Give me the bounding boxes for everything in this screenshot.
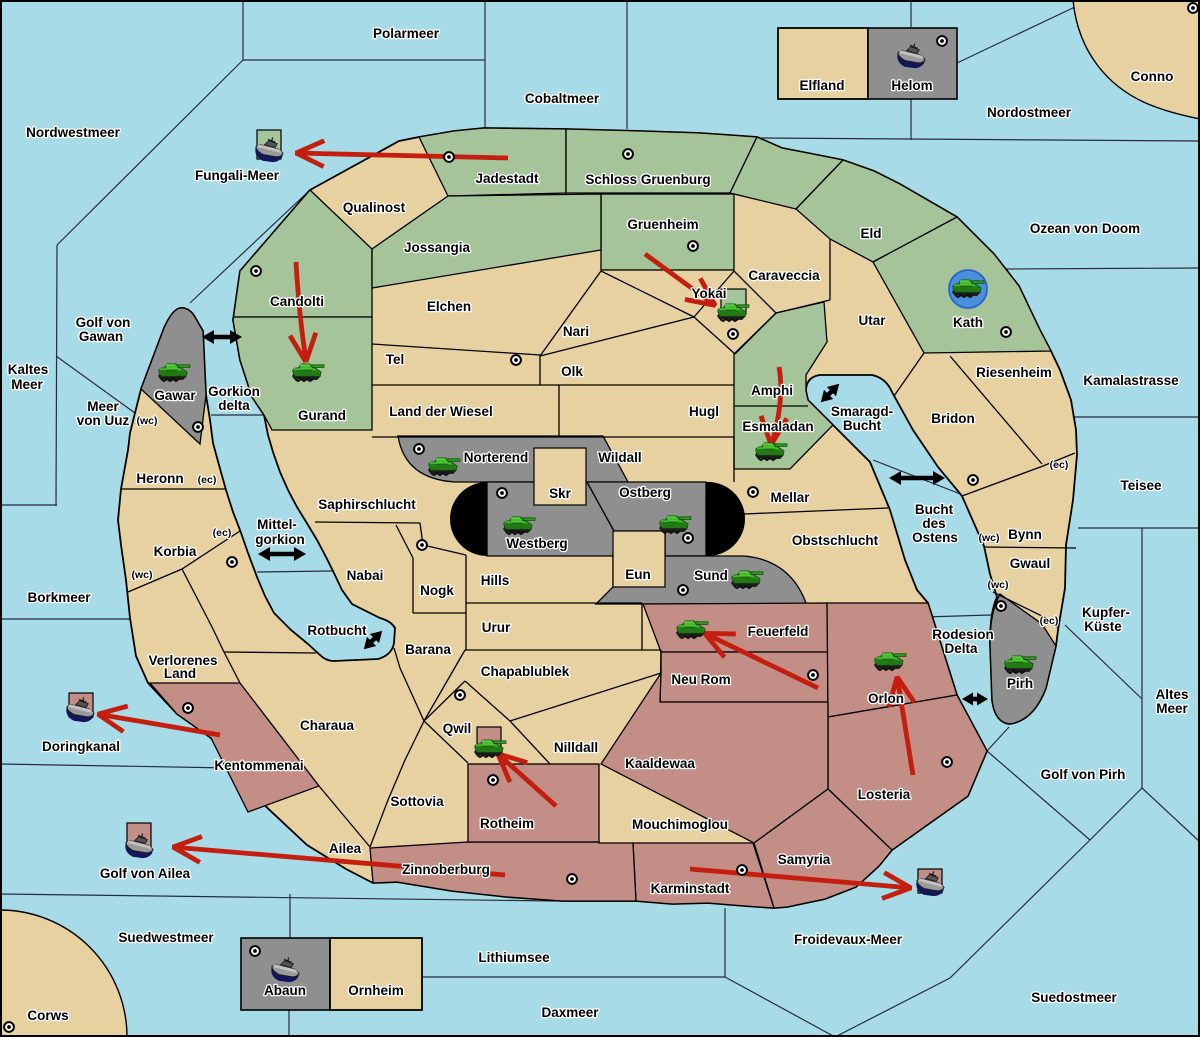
svg-text:Meer: Meer [11, 377, 43, 392]
svg-text:Ostberg: Ostberg [619, 485, 671, 500]
svg-text:Nordwestmeer: Nordwestmeer [26, 125, 121, 140]
svg-text:Korbia: Korbia [154, 544, 197, 559]
svg-text:Hugl: Hugl [689, 404, 719, 419]
svg-text:Golf von Ailea: Golf von Ailea [100, 866, 191, 881]
svg-text:Kamalastrasse: Kamalastrasse [1083, 373, 1179, 388]
svg-text:Land: Land [164, 666, 196, 681]
svg-text:Eun: Eun [625, 567, 651, 582]
svg-text:Kupfer-: Kupfer- [1082, 605, 1130, 620]
svg-text:Elchen: Elchen [427, 299, 471, 314]
svg-text:Westberg: Westberg [506, 536, 567, 551]
svg-text:Jossangia: Jossangia [404, 240, 471, 255]
svg-text:(wc): (wc) [979, 532, 1000, 544]
svg-text:Tel: Tel [386, 352, 405, 367]
svg-text:Schloss Gruenburg: Schloss Gruenburg [585, 172, 710, 187]
svg-text:Cobaltmeer: Cobaltmeer [525, 91, 600, 106]
svg-text:Suedostmeer: Suedostmeer [1031, 990, 1117, 1005]
svg-text:Mouchimoglou: Mouchimoglou [632, 817, 728, 832]
svg-text:Kaltes: Kaltes [8, 362, 49, 377]
svg-text:(ec): (ec) [1040, 615, 1059, 627]
svg-text:(ec): (ec) [1050, 459, 1069, 471]
svg-text:Bucht: Bucht [843, 418, 882, 433]
svg-text:des: des [922, 516, 945, 531]
svg-text:Smaragd-: Smaragd- [831, 404, 893, 419]
svg-text:Mellar: Mellar [770, 490, 810, 505]
svg-text:(wc): (wc) [988, 579, 1009, 591]
svg-text:Losteria: Losteria [858, 787, 911, 802]
svg-text:Ozean von Doom: Ozean von Doom [1030, 221, 1140, 236]
svg-text:Gurand: Gurand [298, 408, 346, 423]
svg-text:(wc): (wc) [132, 569, 153, 581]
svg-text:Qwil: Qwil [443, 721, 472, 736]
svg-text:Heronn: Heronn [136, 471, 183, 486]
svg-text:delta: delta [218, 398, 250, 413]
svg-text:Esmaladan: Esmaladan [742, 419, 813, 434]
svg-text:Pirh: Pirh [1007, 676, 1033, 691]
svg-text:Amphi: Amphi [751, 383, 793, 398]
svg-text:Jadestadt: Jadestadt [475, 171, 539, 186]
svg-text:Ornheim: Ornheim [348, 983, 404, 998]
svg-text:Eld: Eld [860, 226, 881, 241]
svg-text:Ailea: Ailea [329, 841, 362, 856]
svg-text:Sottovia: Sottovia [390, 794, 444, 809]
svg-text:Fungali-Meer: Fungali-Meer [195, 168, 280, 183]
svg-text:Nabai: Nabai [347, 568, 384, 583]
svg-text:Candolti: Candolti [270, 294, 324, 309]
svg-text:Doringkanal: Doringkanal [42, 739, 120, 754]
svg-text:(ec): (ec) [198, 474, 217, 486]
svg-text:Gawar: Gawar [154, 388, 196, 403]
svg-text:Conno: Conno [1131, 69, 1174, 84]
svg-text:Qualinost: Qualinost [343, 200, 406, 215]
svg-text:Utar: Utar [858, 313, 886, 328]
svg-text:Yokai: Yokai [691, 286, 726, 301]
svg-text:Gawan: Gawan [79, 329, 123, 344]
svg-text:Altes: Altes [1155, 687, 1188, 702]
svg-text:gorkion: gorkion [255, 532, 305, 547]
svg-text:Corws: Corws [27, 1008, 68, 1023]
svg-text:Bridon: Bridon [931, 411, 975, 426]
svg-text:Abaun: Abaun [264, 983, 306, 998]
svg-text:Feuerfeld: Feuerfeld [748, 624, 809, 639]
svg-text:Meer: Meer [87, 399, 119, 414]
svg-text:(ec): (ec) [213, 527, 232, 539]
svg-text:Riesenheim: Riesenheim [976, 365, 1052, 380]
svg-text:Chapablublek: Chapablublek [481, 664, 570, 679]
svg-text:Elfland: Elfland [799, 78, 844, 93]
svg-text:Nilldall: Nilldall [554, 740, 598, 755]
svg-text:Lithiumsee: Lithiumsee [478, 950, 550, 965]
svg-text:Zinnoberburg: Zinnoberburg [402, 862, 490, 877]
svg-text:Borkmeer: Borkmeer [27, 590, 91, 605]
svg-text:Nari: Nari [563, 324, 589, 339]
svg-text:Golf von Pirh: Golf von Pirh [1041, 767, 1126, 782]
svg-text:Teisee: Teisee [1120, 478, 1162, 493]
svg-text:Neu Rom: Neu Rom [671, 672, 730, 687]
svg-text:Charaua: Charaua [300, 718, 355, 733]
svg-text:Helom: Helom [891, 78, 932, 93]
svg-text:Mittel-: Mittel- [257, 517, 297, 532]
svg-text:Land der Wiesel: Land der Wiesel [389, 404, 492, 419]
svg-text:Karminstadt: Karminstadt [651, 881, 730, 896]
svg-text:Suedwestmeer: Suedwestmeer [118, 930, 214, 945]
svg-text:Barana: Barana [405, 642, 451, 657]
svg-text:Kaaldewaa: Kaaldewaa [625, 756, 695, 771]
svg-text:Golf von: Golf von [76, 315, 131, 330]
svg-text:Ostens: Ostens [912, 530, 958, 545]
svg-text:Polarmeer: Polarmeer [373, 26, 440, 41]
svg-text:Froidevaux-Meer: Froidevaux-Meer [794, 932, 903, 947]
svg-text:Daxmeer: Daxmeer [541, 1005, 599, 1020]
svg-text:Samyria: Samyria [778, 852, 831, 867]
svg-text:Gwaul: Gwaul [1010, 556, 1051, 571]
svg-text:Nordostmeer: Nordostmeer [987, 105, 1072, 120]
svg-text:Kentommenai: Kentommenai [214, 758, 303, 773]
svg-text:Sund: Sund [694, 568, 728, 583]
svg-text:Meer: Meer [1156, 701, 1188, 716]
svg-text:Orlon: Orlon [868, 691, 904, 706]
svg-text:Obstschlucht: Obstschlucht [792, 533, 879, 548]
svg-text:Skr: Skr [549, 486, 572, 501]
svg-text:Hills: Hills [481, 573, 510, 588]
svg-text:von Uuz: von Uuz [77, 413, 130, 428]
svg-text:Bucht: Bucht [915, 502, 954, 517]
svg-text:Rodesion: Rodesion [932, 627, 994, 642]
svg-text:Kath: Kath [953, 315, 983, 330]
svg-text:Gorkion: Gorkion [208, 384, 260, 399]
svg-text:Rotheim: Rotheim [480, 816, 534, 831]
svg-text:Bynn: Bynn [1008, 527, 1042, 542]
svg-text:(wc): (wc) [137, 415, 158, 427]
svg-text:Rotbucht: Rotbucht [307, 623, 367, 638]
svg-text:Saphirschlucht: Saphirschlucht [318, 497, 416, 512]
svg-text:Delta: Delta [944, 641, 978, 656]
svg-text:Norterend: Norterend [464, 450, 529, 465]
svg-text:Gruenheim: Gruenheim [627, 217, 698, 232]
svg-text:Nogk: Nogk [420, 583, 454, 598]
svg-text:Wildall: Wildall [598, 450, 641, 465]
svg-text:Caraveccia: Caraveccia [748, 268, 820, 283]
svg-text:Urur: Urur [482, 620, 511, 635]
svg-text:Olk: Olk [561, 364, 583, 379]
svg-text:Küste: Küste [1084, 619, 1122, 634]
